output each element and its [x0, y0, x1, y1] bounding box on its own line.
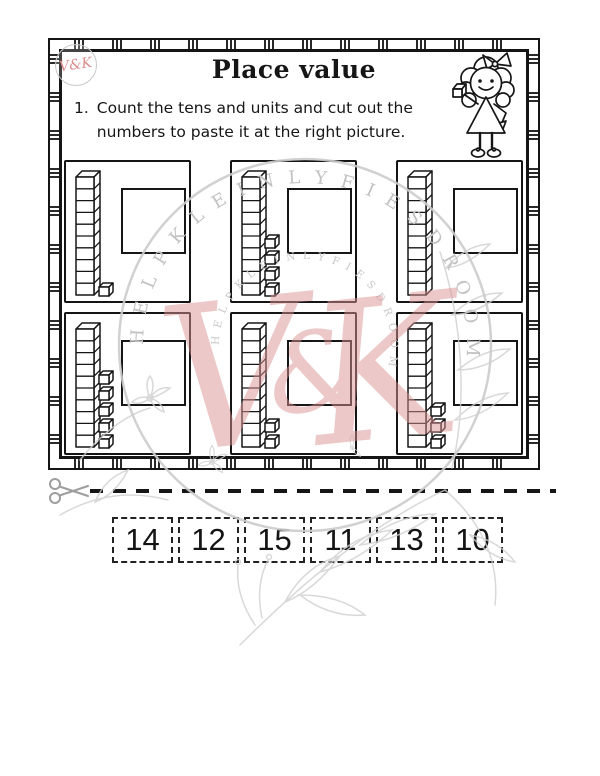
unit-cube-icon [430, 434, 447, 449]
unit-cube-icon [98, 434, 115, 449]
girl-shoes [472, 148, 501, 157]
unit-cube-icon [98, 402, 115, 417]
cutout-number-tile[interactable]: 14 [112, 517, 173, 563]
border-pattern-top [50, 40, 538, 49]
number-strip: 14 12 15 11 13 10 [112, 517, 503, 563]
unit-cube-icon [264, 282, 281, 297]
cutout-number-label: 15 [257, 522, 291, 558]
unit-cube-icon [98, 386, 115, 401]
unit-cubes [430, 402, 447, 449]
place-value-card [64, 160, 191, 303]
instruction: 1. Count the tens and units and cut out … [74, 96, 466, 144]
place-value-card [230, 160, 357, 303]
cutout-number-tile[interactable]: 11 [310, 517, 371, 563]
tens-rod-icon [406, 168, 436, 298]
worksheet-content: Place value 1. Count the tens and units … [59, 49, 529, 459]
picture-grid [64, 160, 523, 455]
cutout-number-tile[interactable]: 10 [442, 517, 503, 563]
place-value-card [396, 312, 523, 455]
cutout-number-tile[interactable]: 13 [376, 517, 437, 563]
cutout-number-label: 12 [191, 522, 225, 558]
tens-rod-icon [74, 168, 104, 298]
instruction-number: 1. [74, 96, 89, 144]
instruction-text: Count the tens and units and cut out the… [97, 96, 466, 144]
girl-legs [480, 133, 492, 149]
unit-cube-icon [264, 418, 281, 433]
answer-paste-box[interactable] [453, 188, 518, 254]
answer-paste-box[interactable] [287, 340, 352, 406]
girl-bow [483, 53, 511, 69]
unit-cube-icon [430, 418, 447, 433]
cutout-number-label: 14 [125, 522, 159, 558]
brand-logo: V&K [55, 44, 97, 86]
border-pattern-left [50, 40, 59, 468]
unit-cube-icon [98, 370, 115, 385]
worksheet-page: V&K Place value 1. Count the tens and un… [0, 0, 600, 776]
unit-cube-icon [98, 418, 115, 433]
brand-monogram: V&K [59, 55, 94, 75]
border-pattern-right [529, 40, 538, 468]
unit-cube-icon [264, 250, 281, 265]
cutout-number-tile[interactable]: 15 [244, 517, 305, 563]
cut-line [90, 489, 556, 493]
answer-paste-box[interactable] [453, 340, 518, 406]
unit-cube-icon [264, 234, 281, 249]
unit-cubes [264, 234, 281, 297]
scissors-icon [48, 476, 90, 506]
unit-cube-icon [264, 434, 281, 449]
worksheet-frame: Place value 1. Count the tens and units … [48, 38, 540, 470]
girl-face [471, 68, 502, 99]
held-cube [453, 84, 466, 97]
answer-paste-box[interactable] [121, 188, 186, 254]
cutout-number-label: 10 [455, 522, 489, 558]
unit-cube-icon [430, 402, 447, 417]
girl-clipart [448, 52, 526, 162]
answer-paste-box[interactable] [121, 340, 186, 406]
unit-cube-icon [264, 266, 281, 281]
answer-paste-box[interactable] [287, 188, 352, 254]
unit-cube-icon [98, 282, 115, 297]
unit-cubes [264, 418, 281, 449]
cutout-number-label: 11 [324, 522, 356, 558]
place-value-card [64, 312, 191, 455]
unit-cubes [98, 282, 115, 297]
cutout-number-label: 13 [389, 522, 423, 558]
cutout-number-tile[interactable]: 12 [178, 517, 239, 563]
unit-cubes [98, 370, 115, 449]
place-value-card [230, 312, 357, 455]
place-value-card [396, 160, 523, 303]
border-pattern-bottom [50, 459, 538, 468]
